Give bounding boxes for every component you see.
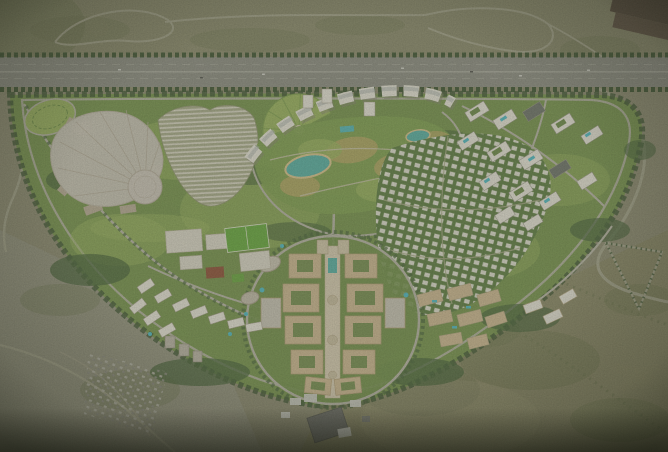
vignette: [0, 0, 668, 452]
aerial-masterplan-render: [0, 0, 668, 452]
scene-svg: [0, 0, 668, 452]
